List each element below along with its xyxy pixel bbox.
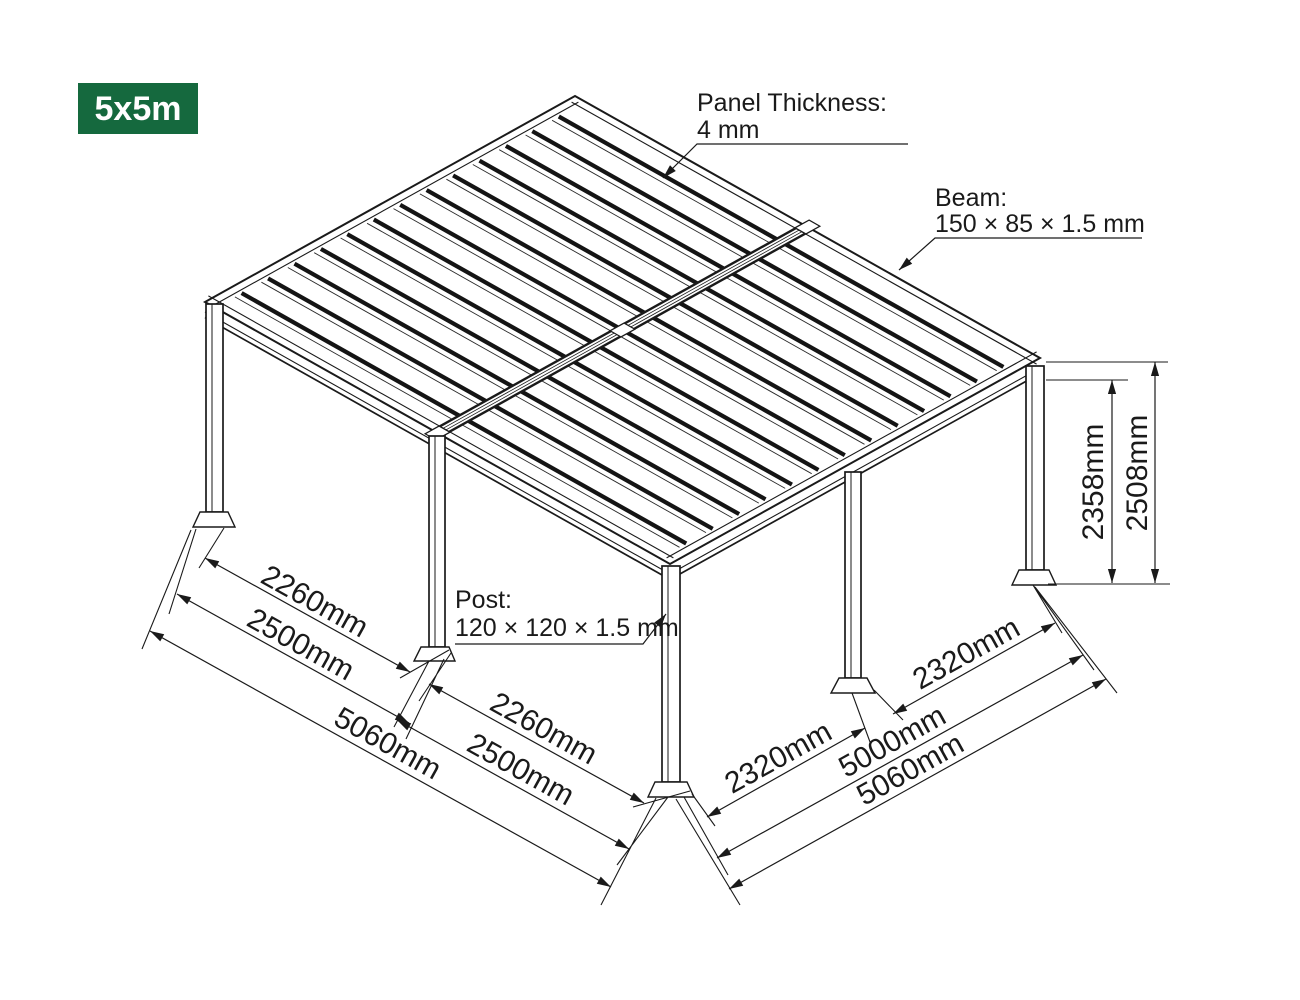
roof	[205, 96, 1040, 580]
size-badge: 5x5m	[78, 83, 198, 134]
post-base-plate	[648, 782, 694, 797]
callout-beam-value: 150 × 85 × 1.5 mm	[935, 210, 1145, 238]
callout-panel-thickness: Panel Thickness: 4 mm	[663, 89, 908, 178]
dim-height-overall-label: 2508mm	[1121, 415, 1154, 532]
dim-right-inner-back-label: 2320mm	[907, 611, 1025, 696]
callout-beam: Beam: 150 × 85 × 1.5 mm	[899, 184, 1145, 270]
callout-post-value: 120 × 120 × 1.5 mm	[455, 614, 679, 642]
callout-post-title: Post:	[455, 586, 512, 614]
size-badge-label: 5x5m	[95, 90, 182, 128]
post-right-corner	[1012, 366, 1056, 585]
callout-beam-title: Beam:	[935, 184, 1007, 212]
dim-left-overall-line	[150, 631, 611, 887]
pergola-diagram: 2260mm 2500mm 5060mm 2260mm 2500mm 2320m…	[0, 0, 1300, 1000]
post-base-plate	[193, 512, 235, 527]
dim-left-overall-label: 5060mm	[329, 701, 447, 786]
post-front-right-middle	[831, 472, 875, 693]
callout-post: Post: 120 × 120 × 1.5 mm	[455, 586, 679, 644]
post-front-corner	[648, 566, 694, 797]
callout-panel-value: 4 mm	[697, 116, 760, 144]
dim-right-inner-front-label: 2320mm	[719, 715, 837, 800]
post-base-plate	[1012, 570, 1056, 585]
callout-beam-leader	[899, 238, 1142, 270]
callout-panel-title: Panel Thickness:	[697, 89, 887, 117]
post-left-corner	[193, 304, 235, 527]
post-base-plate	[831, 678, 875, 693]
dim-height-post-label: 2358mm	[1077, 424, 1110, 541]
